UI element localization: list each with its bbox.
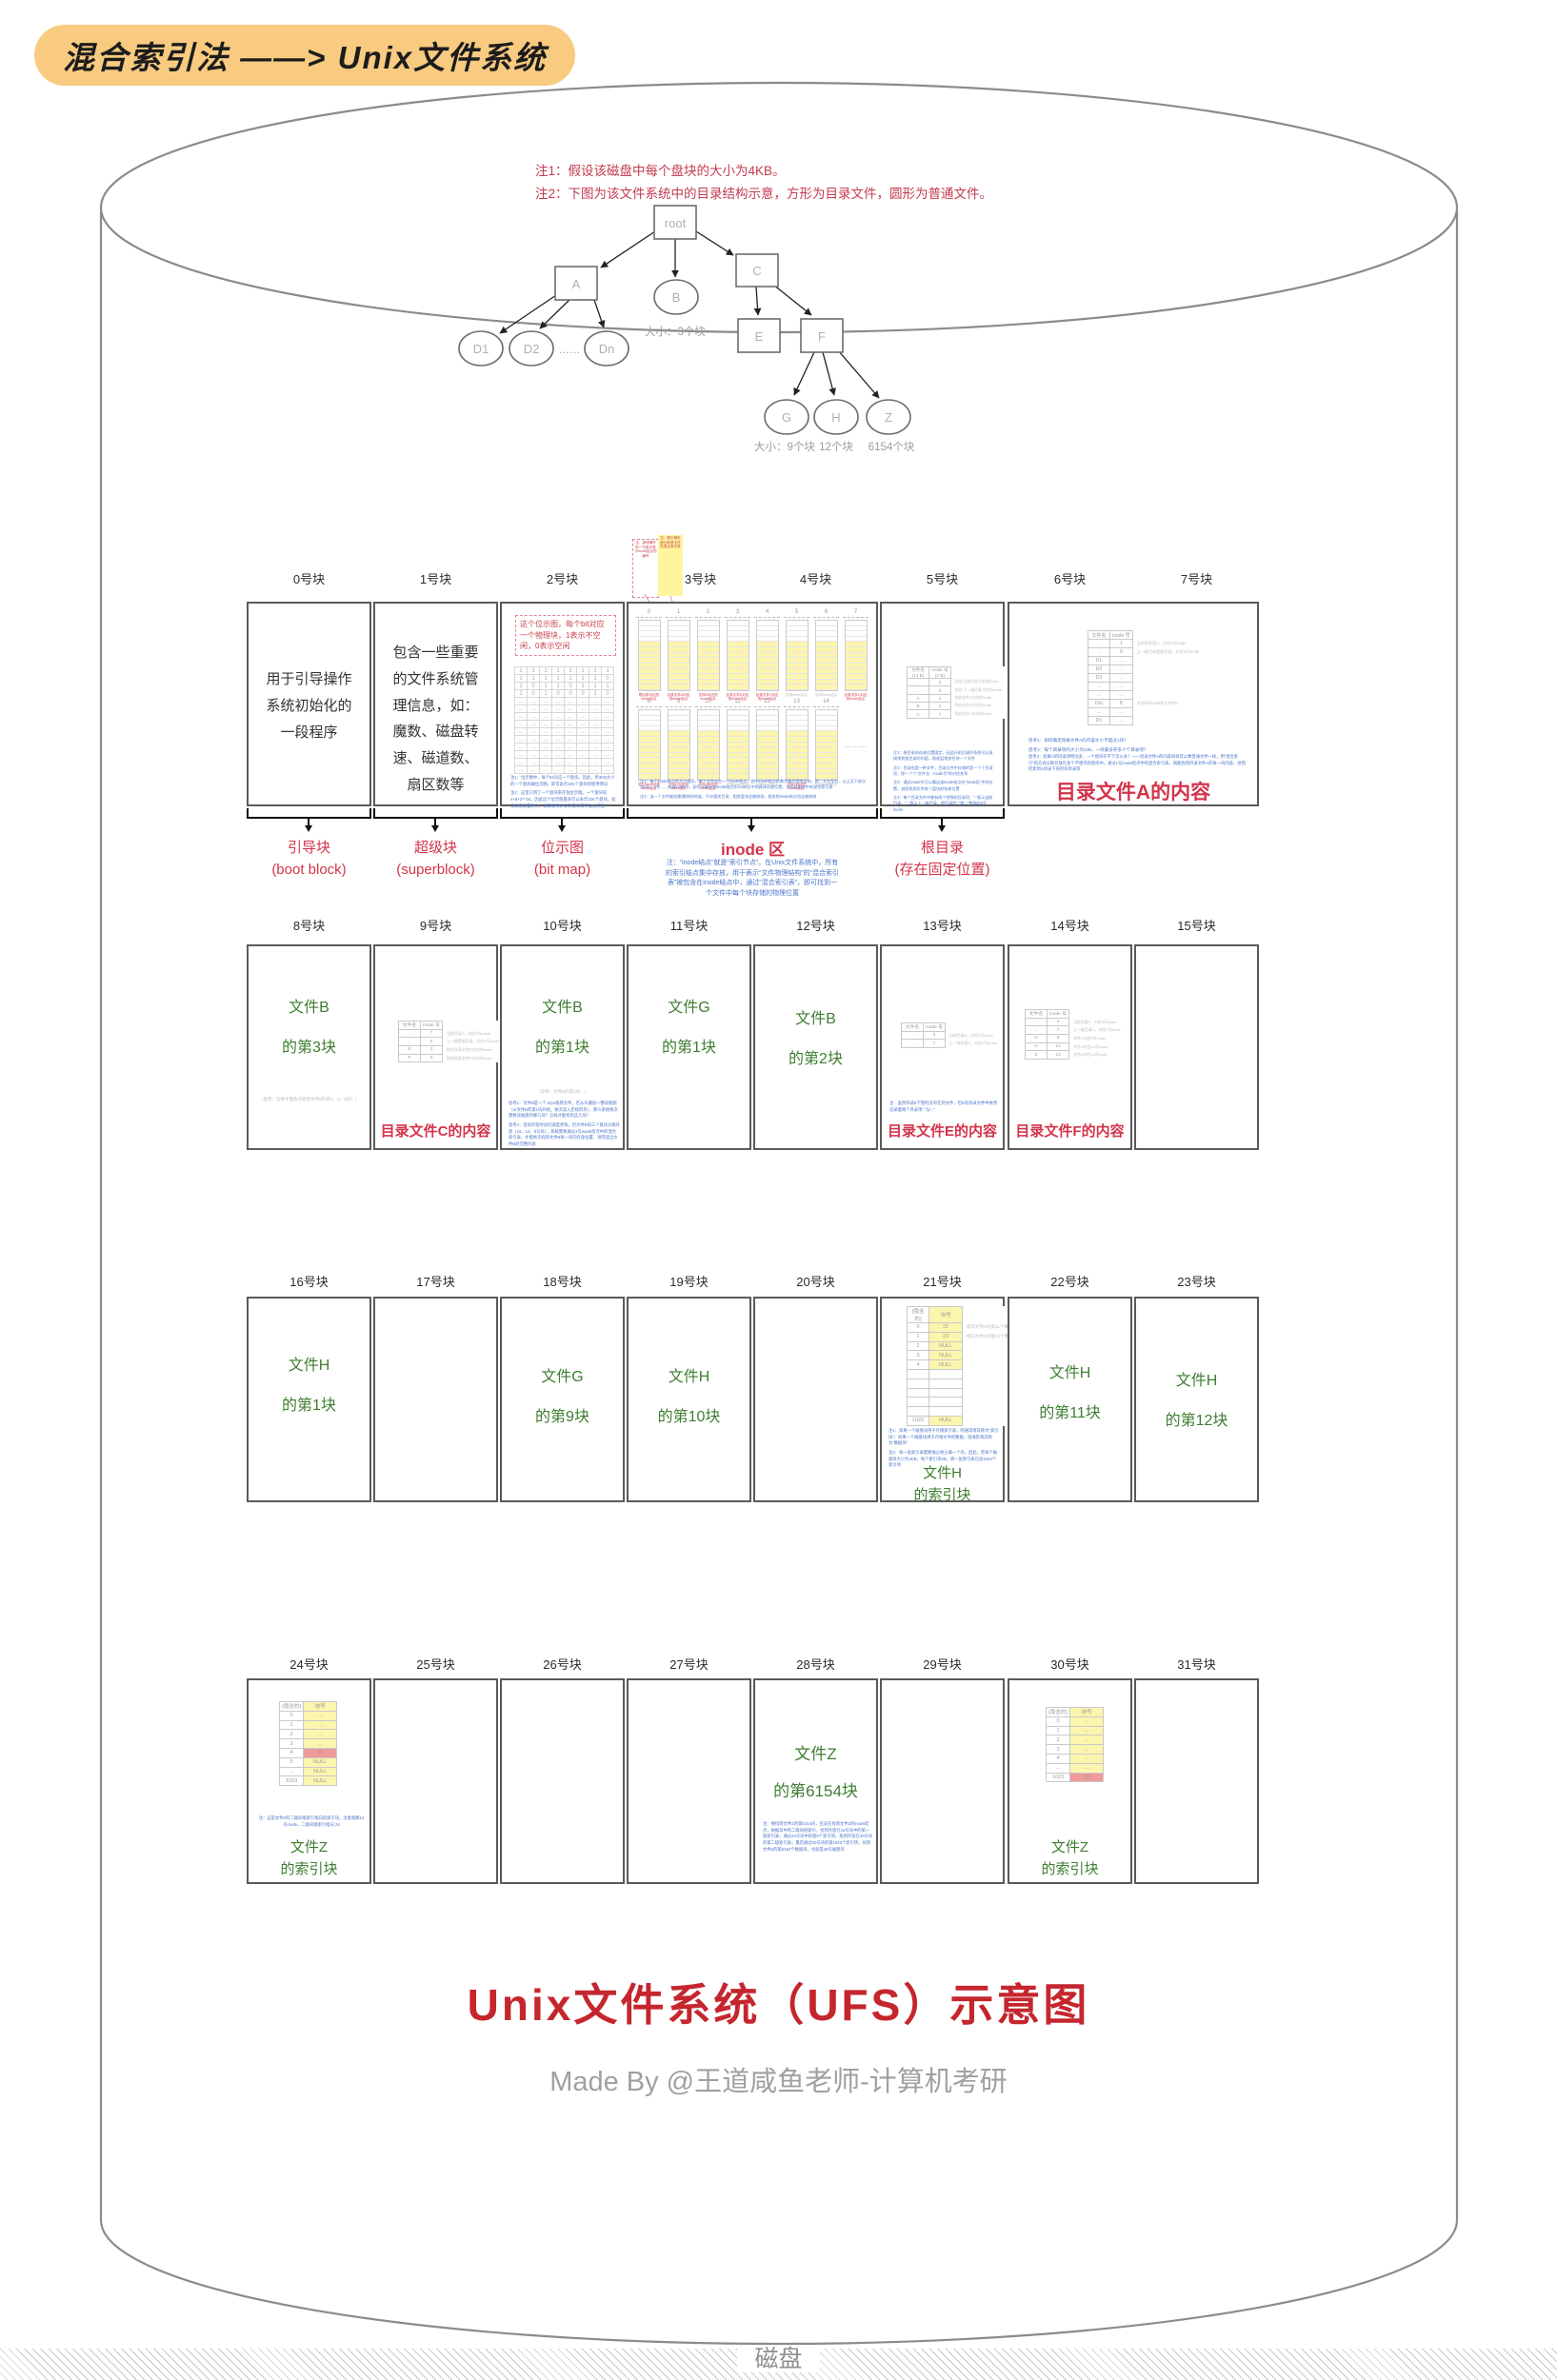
- inode-node-9: 9文件G对应的 inode结点: [666, 698, 691, 791]
- block-10-file-b1: 文件B 的第1块 （思考：文件B的第1块…） 思考1：文件B是一个.mp4视频文…: [500, 944, 625, 1150]
- cylinder-top-ellipse: [101, 83, 1457, 332]
- tree-node-root: root: [665, 216, 687, 230]
- directory-e-table: 文件名inode 号.3当前目录E，对应3号inode..7上一级目录C，对应7…: [901, 1022, 999, 1048]
- block-25-empty: [373, 1678, 498, 1884]
- tree-node-d1: D1: [473, 342, 489, 356]
- directory-c-caption: 目录文件C的内容: [375, 1121, 496, 1140]
- block-header-5: 5号块: [880, 569, 1005, 587]
- block-28-file-z6154: 文件Z 的第6154块 注：要找到文件Z的第6154块，应该先找到文件Z的ino…: [753, 1678, 878, 1884]
- data-table: 文件名inode 号.1当前目录是A，对应1号inode..0上一级目录是根目录…: [1088, 630, 1202, 725]
- data-table: (隐含的)块号0…1…2…3…4………102328: [1046, 1707, 1104, 1782]
- block-11-file-g1: 文件G 的第1块: [627, 944, 751, 1150]
- block-17-empty: [373, 1297, 498, 1502]
- boot-block-text: 用于引导操作 系统初始化的 一段程序: [249, 666, 369, 745]
- block-header-4: 4号块: [753, 569, 878, 587]
- inode-node-5: 5空闲inode结点: [784, 608, 809, 702]
- bracket-inode-area: [627, 808, 878, 819]
- block-header-11: 11号块: [627, 916, 751, 934]
- tree-node-c: C: [752, 264, 761, 278]
- label-root-directory: 根目录 (存在固定位置): [880, 838, 1005, 881]
- block-29-empty: [880, 1678, 1005, 1884]
- cylinder-bottom-arc: [101, 2220, 1457, 2344]
- tree-size-g: 大小：9个块: [754, 440, 815, 453]
- label-bitmap: 位示图 (bit map): [500, 838, 625, 881]
- block-header-27: 27号块: [627, 1655, 751, 1673]
- inode-node-12: 12空闲inode结点: [754, 698, 780, 791]
- root-directory-notes: 注1：根目录的存放位置固定，因此开机后操作系统可以直接找到根目录的内容，再逐层找…: [893, 750, 994, 816]
- tree-node-d2: D2: [524, 342, 540, 356]
- inode-node-6: 6空闲inode结点: [813, 608, 839, 702]
- block-header-30: 30号块: [1008, 1655, 1132, 1673]
- block-3-4-inode-area: 0根目录对应的 inode结点1目录文件A对应 的inode结点2文件B对应的 …: [627, 602, 878, 806]
- block-2-bitmap: 这个位示图，每个bit对应一个物理块，1表示不空闲，0表示空闲 11111111…: [500, 602, 625, 806]
- label-inode-area-note: 注：“inode结点”就是“索引节点”。在Unix文件系统中，所有的索引结点集中…: [665, 859, 840, 899]
- block-31-empty: [1134, 1678, 1259, 1884]
- block-header-21: 21号块: [880, 1272, 1005, 1290]
- inode-node-7: 7目录文件C对应 的inode结点: [843, 608, 868, 702]
- inode-node-0: 0根目录对应的 inode结点: [636, 608, 662, 702]
- block-header-28: 28号块: [753, 1655, 878, 1673]
- file-z-index2-table: (隐含的)块号0…1…2…3…4………102328: [1046, 1707, 1104, 1782]
- directory-c-table: 文件名inode 号.7当前目录C，对应7号inode..0上一级是根目录，对应…: [398, 1021, 502, 1062]
- file-h-index-table: (隐含的)块号022指向文件H的第11个数据块123指向文件H的第12个数据块2…: [907, 1306, 1020, 1426]
- block-18-file-g9: 文件G 的第9块: [500, 1297, 625, 1502]
- block-1-superblock: 包含一些重要 的文件系统管 理信息，如： 魔数、磁盘转 速、磁道数、 扇区数等: [373, 602, 498, 806]
- bracket-inode-stem: [750, 817, 752, 825]
- file-z-index1-caption: 文件Z 的索引块: [249, 1836, 369, 1881]
- bracket-bitmap-arrow: [558, 825, 566, 836]
- inode-node-14: 14空闲inode结点: [813, 698, 839, 791]
- file-z6154-note: 注：要找到文件Z的第6154块，应该先找到文件Z的inode结点，根据其中的二级…: [763, 1821, 873, 1853]
- directory-a-note: 思考3：如果A的目录项特别多，一个盘块存不下怎么办？——目录文件A的内容同样可以…: [1028, 754, 1248, 773]
- file-h11-caption: 文件H 的第11块: [1009, 1354, 1130, 1433]
- block-header-7: 7号块: [1134, 569, 1259, 587]
- tree-node-h: H: [831, 410, 840, 425]
- block-header-25: 25号块: [373, 1655, 498, 1673]
- tree-node-dn: Dn: [599, 342, 615, 356]
- file-z-index2-caption: 文件Z 的索引块: [1009, 1836, 1130, 1881]
- bracket-inode-arrow: [748, 825, 755, 836]
- block-header-15: 15号块: [1134, 916, 1259, 934]
- file-h10-caption: 文件H 的第10块: [629, 1358, 749, 1437]
- block-header-9: 9号块: [373, 916, 498, 934]
- file-b2-caption: 文件B 的第2块: [755, 1000, 876, 1079]
- block-header-12: 12号块: [753, 916, 878, 934]
- block-26-empty: [500, 1678, 625, 1884]
- label-boot-block: 引导块 (boot block): [247, 838, 371, 881]
- file-b3-note: （思考：怎样才能依次找到文件B的第1、2、3块？）: [249, 1097, 369, 1102]
- inode-ellipsis: ………: [843, 698, 868, 791]
- block-header-24: 24号块: [247, 1655, 371, 1673]
- directory-e-note: 注：虽然目录E下暂时没有任何文件，但E的目录文件中依然记录着两个目录项“.”与“…: [889, 1101, 999, 1113]
- inode-node-8: 8文件Dm对应的 inode结点: [636, 698, 662, 791]
- file-h-index-caption: 文件H 的索引块: [882, 1462, 1003, 1507]
- inode-node-10: 10文件H对应的 inode结点: [695, 698, 721, 791]
- block-header-10: 10号块: [500, 916, 625, 934]
- block-19-file-h10: 文件H 的第10块: [627, 1297, 751, 1502]
- tree-size-z: 6154个块: [868, 441, 915, 453]
- ufs-diagram: root A C B D1 D2 …… Dn E F G H Z 大小：3个块: [0, 0, 1557, 2380]
- inode-node-2: 2文件B对应的 inode结点: [695, 608, 721, 702]
- bracket-boot-stem: [308, 817, 309, 825]
- bracket-boot-arrow: [305, 825, 312, 836]
- tree-edges: [500, 231, 879, 398]
- block-header-17: 17号块: [373, 1272, 498, 1290]
- block-30-file-z-index2: (隐含的)块号0…1…2…3…4………102328 文件Z 的索引块: [1008, 1678, 1132, 1884]
- disk-label: 磁盘: [0, 2340, 1557, 2374]
- block-22-file-h11: 文件H 的第11块: [1008, 1297, 1132, 1502]
- note-2: 注2：下图为该文件系统中的目录结构示意，方形为目录文件，圆形为普通文件。: [535, 183, 992, 202]
- tree-node-f: F: [818, 329, 826, 344]
- credit-line: Made By @王道咸鱼老师-计算机考研: [0, 2059, 1557, 2099]
- block-21-file-h-index: (隐含的)块号022指向文件H的第11个数据块123指向文件H的第12个数据块2…: [880, 1297, 1005, 1502]
- handwritten-annotation: 混合索引法 ——> Unix文件系统: [34, 25, 575, 86]
- file-b3-caption: 文件B 的第3块: [249, 988, 369, 1067]
- label-superblock: 超级块 (superblock): [373, 838, 498, 881]
- directory-a-table: 文件名inode 号.1当前目录是A，对应1号inode..0上一级目录是根目录…: [1088, 630, 1202, 725]
- block-header-26: 26号块: [500, 1655, 625, 1673]
- block-header-13: 13号块: [880, 916, 1005, 934]
- block-6-7-directory-a: 文件名inode 号.1当前目录是A，对应1号inode..0上一级目录是根目录…: [1008, 602, 1259, 806]
- tree-ellipsis: ……: [559, 345, 581, 356]
- block-header-31: 31号块: [1134, 1655, 1259, 1673]
- inode-node-4: 4目录文件F对应 的inode结点: [754, 608, 780, 702]
- bracket-bitmap-stem: [561, 817, 563, 825]
- block-header-2: 2号块: [500, 569, 625, 587]
- label-inode-area: inode 区: [690, 836, 815, 860]
- block-header-16: 16号块: [247, 1272, 371, 1290]
- file-h12-caption: 文件H 的第12块: [1136, 1361, 1257, 1440]
- superblock-text: 包含一些重要 的文件系统管 理信息，如： 魔数、磁盘转 速、磁道数、 扇区数等: [375, 640, 496, 799]
- block-5-root-directory: 文件名 (14 B)inode 号 (2 B).0指向“当前目录”对应的inod…: [880, 602, 1005, 806]
- inode-node-1: 1目录文件A对应 的inode结点: [666, 608, 691, 702]
- tree-node-e: E: [755, 329, 764, 344]
- block-0-boot: 用于引导操作 系统初始化的 一段程序: [247, 602, 371, 806]
- block-header-23: 23号块: [1134, 1272, 1259, 1290]
- block-23-file-h12: 文件H 的第12块: [1134, 1297, 1259, 1502]
- inode-node-3: 3目录文件E对应 的inode结点: [725, 608, 750, 702]
- block-header-14: 14号块: [1008, 916, 1132, 934]
- data-table: 文件名inode 号.3当前目录E，对应3号inode..7上一级目录C，对应7…: [901, 1022, 999, 1048]
- data-table: 文件名 (14 B)inode 号 (2 B).0指向“当前目录”对应的inod…: [907, 666, 1005, 719]
- block-header-8: 8号块: [247, 916, 371, 934]
- directory-f-table: 文件名inode 号.4当前目录F，对应4号inode..7上一级目录C，对应7…: [1025, 1009, 1124, 1060]
- block-20-empty: [753, 1297, 878, 1502]
- bitmap-notes: 注1：位示图中，每个bit对应一个盘块。因此，用4KB大小的一个盘块做位示图，即…: [510, 775, 618, 812]
- block-27-empty: [627, 1678, 751, 1884]
- directory-a-caption: 目录文件A的内容: [1009, 777, 1257, 805]
- file-z-index1-table: (隐含的)块号0…1…2…3…4305NULL…NULL1023NULL: [279, 1701, 337, 1786]
- inode-node-11: 11空闲inode结点: [725, 698, 750, 791]
- block-header-19: 19号块: [627, 1272, 751, 1290]
- bitmap-callout: 这个位示图，每个bit对应一个物理块，1表示不空闲，0表示空闲: [515, 615, 616, 656]
- block-header-29: 29号块: [880, 1655, 1005, 1673]
- directory-e-caption: 目录文件E的内容: [882, 1121, 1003, 1140]
- tree-node-g: G: [782, 410, 791, 425]
- block-8-file-b3: 文件B 的第3块 （思考：怎样才能依次找到文件B的第1、2、3块？）: [247, 944, 371, 1150]
- data-table: (隐含的)块号0…1…2…3…4305NULL…NULL1023NULL: [279, 1701, 337, 1786]
- bracket-rootdir-stem: [941, 817, 943, 825]
- block-14-directory-f: 文件名inode 号.4当前目录F，对应4号inode..7上一级目录C，对应7…: [1008, 944, 1132, 1150]
- block-header-6: 6号块: [1008, 569, 1132, 587]
- bracket-superblock-arrow: [431, 825, 439, 836]
- bitmap-grid: 11111111111111101011011110100010………………………: [514, 666, 614, 774]
- file-z-index1-note: 注：这是文件Z的二级间接索引指向的索引块。注意观察13号inode，二级间接索引…: [258, 1815, 365, 1828]
- inode-node-13: 13文件Z对应的 inode结点: [784, 698, 809, 791]
- inode-number-callout: 注：虚线隔开的一行数字表示inode结点的编号: [632, 539, 659, 598]
- block-header-22: 22号块: [1008, 1272, 1132, 1290]
- note-1: 注1：假设该磁盘中每个盘块的大小为4KB。: [535, 160, 786, 179]
- tree-node-z: Z: [885, 410, 892, 425]
- block-9-directory-c: 文件名inode 号.7当前目录C，对应7号inode..0上一级是根目录，对应…: [373, 944, 498, 1150]
- inode-strip-row2: 8文件Dm对应的 inode结点9文件G对应的 inode结点10文件H对应的 …: [636, 698, 868, 791]
- root-directory-table: 文件名 (14 B)inode 号 (2 B).0指向“当前目录”对应的inod…: [907, 666, 1005, 719]
- block-15-empty: [1134, 944, 1259, 1150]
- tree-size-b: 大小：3个块: [645, 325, 706, 338]
- file-h1-caption: 文件H 的第1块: [249, 1346, 369, 1425]
- inode-area-notes: 注1：每个inode结点的大小相同，每个文件对应一个inode结点。图中inod…: [640, 779, 868, 803]
- mixed-index-callout: 注：图中黄色部分就是文件的混合索引表: [658, 535, 683, 596]
- block-13-directory-e: 文件名inode 号.3当前目录E，对应3号inode..7上一级目录C，对应7…: [880, 944, 1005, 1150]
- file-b1-think: 思考1：文件B是一个.mp4视频文件，若从头播放一整段视频（从文件B的第1块开始…: [509, 1101, 620, 1151]
- block-header-20: 20号块: [753, 1272, 878, 1290]
- tree-node-a: A: [572, 277, 581, 291]
- data-table: (隐含的)块号022指向文件H的第11个数据块123指向文件H的第12个数据块2…: [907, 1306, 1020, 1426]
- data-table: 文件名inode 号.7当前目录C，对应7号inode..0上一级是根目录，对应…: [398, 1021, 502, 1062]
- block-header-1: 1号块: [373, 569, 498, 587]
- block-16-file-h1: 文件H 的第1块: [247, 1297, 371, 1502]
- data-table: 文件名inode 号.4当前目录F，对应4号inode..7上一级目录C，对应7…: [1025, 1009, 1124, 1060]
- block-12-file-b2: 文件B 的第2块: [753, 944, 878, 1150]
- page-title: Unix文件系统（UFS）示意图: [0, 1971, 1557, 2033]
- file-g1-caption: 文件G 的第1块: [629, 988, 749, 1067]
- inode-strip-row1: 0根目录对应的 inode结点1目录文件A对应 的inode结点2文件B对应的 …: [636, 608, 868, 702]
- block-header-0: 0号块: [247, 569, 371, 587]
- file-g9-caption: 文件G 的第9块: [502, 1358, 623, 1437]
- file-b1-note: （思考：文件B的第1块…）: [502, 1089, 623, 1095]
- bracket-superblock-stem: [434, 817, 436, 825]
- tree-nodes: root A C B D1 D2 …… Dn E F G H Z 大小：3个块: [459, 206, 915, 453]
- block-header-18: 18号块: [500, 1272, 625, 1290]
- file-b1-caption: 文件B 的第1块: [502, 988, 623, 1067]
- tree-node-b: B: [672, 290, 681, 305]
- data-table: 11111111111111101011011110100010………………………: [514, 666, 614, 774]
- block-24-file-z-index1: (隐含的)块号0…1…2…3…4305NULL…NULL1023NULL 注：这…: [247, 1678, 371, 1884]
- bracket-rootdir-arrow: [938, 825, 946, 836]
- directory-f-caption: 目录文件F的内容: [1009, 1121, 1130, 1140]
- file-z6154-caption: 文件Z 的第6154块: [755, 1735, 876, 1810]
- tree-size-h: 12个块: [819, 441, 853, 453]
